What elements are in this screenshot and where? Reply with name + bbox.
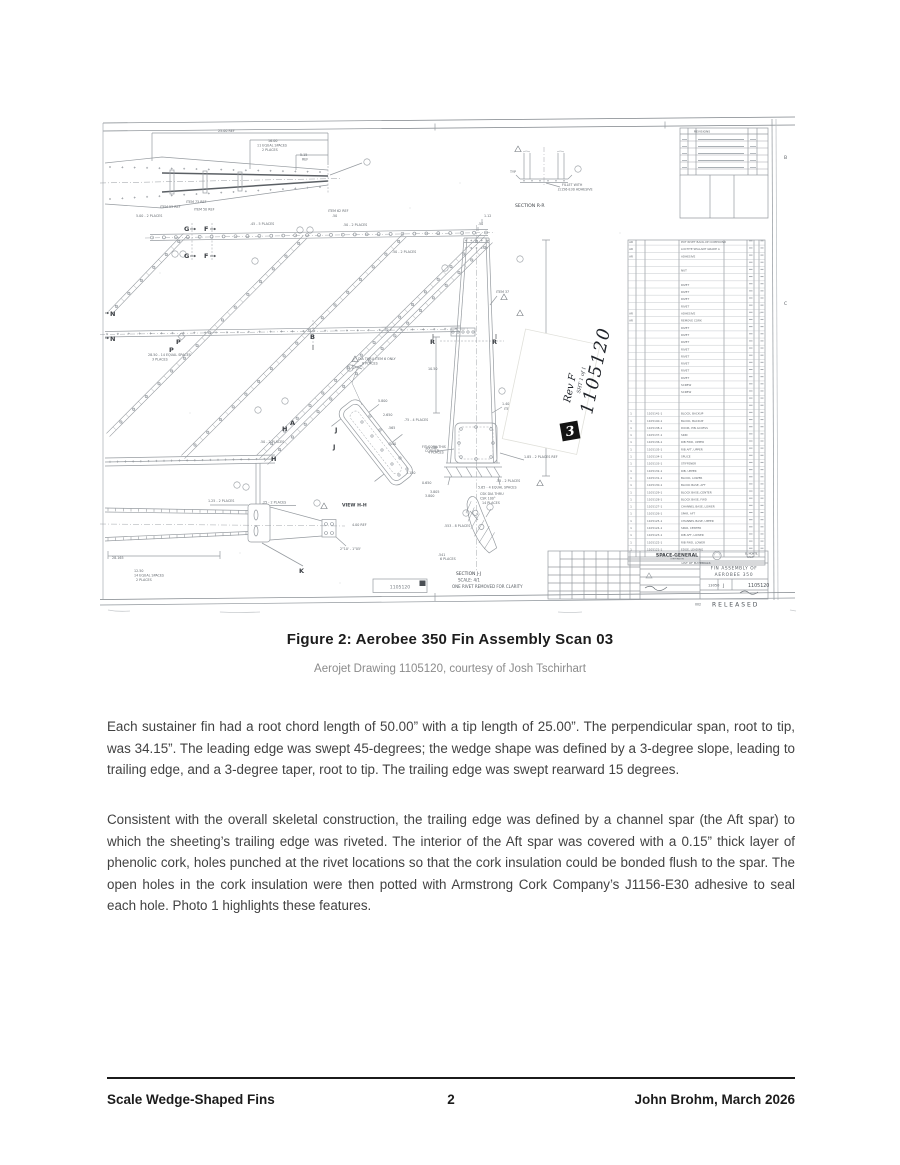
svg-text:3.800: 3.800 — [425, 494, 434, 498]
svg-text:BLOCK, BACKUP: BLOCK, BACKUP — [681, 412, 704, 416]
svg-text:1: 1 — [630, 483, 632, 487]
aerobee-fin-drawing: ARPOT RIVET BACK-UP COMPOUNDARLOCTITE SE… — [100, 113, 800, 613]
svg-text:28.165: 28.165 — [112, 556, 124, 560]
svg-text:RIVET: RIVET — [681, 326, 689, 330]
svg-text:2.650: 2.650 — [383, 413, 392, 417]
svg-text:.565: .565 — [388, 426, 395, 430]
svg-text:2 PLACES: 2 PLACES — [262, 148, 278, 152]
svg-text:2 PLACES: 2 PLACES — [136, 578, 152, 582]
svg-text:AR: AR — [629, 319, 633, 323]
footer-rule — [107, 1077, 795, 1079]
svg-text:STIFFENER: STIFFENER — [681, 462, 696, 466]
svg-text:1105134-1: 1105134-1 — [647, 455, 662, 459]
svg-text:16.00: 16.00 — [268, 139, 277, 143]
svg-text:3 PLACES: 3 PLACES — [152, 358, 168, 362]
svg-text:1.150: 1.150 — [406, 471, 415, 475]
svg-text:ITEM 62 REF: ITEM 62 REF — [328, 209, 349, 213]
svg-text:RIVET: RIVET — [681, 297, 689, 301]
svg-text:1105126-1: 1105126-1 — [647, 512, 662, 516]
svg-text:RIB FWD, LOWER: RIB FWD, LOWER — [681, 540, 705, 544]
svg-text:ITEM 37: ITEM 37 — [496, 290, 509, 294]
svg-text:RIVET: RIVET — [681, 290, 689, 294]
body-paragraph-1: Each sustainer fin had a root chord leng… — [107, 716, 795, 781]
svg-text:1: 1 — [630, 455, 632, 459]
svg-text:1: 1 — [630, 497, 632, 501]
svg-text:FILLET WITH: FILLET WITH — [562, 183, 583, 187]
svg-text:RIVET: RIVET — [681, 347, 689, 351]
svg-text:1105130-1: 1105130-1 — [647, 483, 662, 487]
svg-text:RIVET: RIVET — [681, 362, 689, 366]
svg-text:RIB FWD, UPPER: RIB FWD, UPPER — [681, 440, 704, 444]
svg-text:F: F — [204, 225, 208, 233]
svg-text:1105140-1: 1105140-1 — [647, 419, 662, 423]
svg-text:F: F — [204, 252, 208, 260]
svg-text:1: 1 — [630, 462, 632, 466]
svg-text:1105138-1: 1105138-1 — [647, 426, 662, 430]
svg-text:6 PLACES: 6 PLACES — [440, 557, 456, 561]
svg-text:AR: AR — [629, 240, 633, 244]
svg-text:B: B — [310, 333, 315, 341]
svg-text:.50: .50 — [478, 222, 483, 226]
svg-text:A: A — [290, 419, 295, 427]
svg-text:K: K — [299, 567, 305, 575]
svg-text:14 PLACES: 14 PLACES — [482, 501, 500, 505]
svg-text:P: P — [176, 338, 181, 346]
svg-text:1: 1 — [630, 476, 632, 480]
title-block-size: J — [722, 583, 724, 589]
figure-credit: Aerojet Drawing 1105120, courtesy of Jos… — [0, 663, 900, 675]
svg-text:.45 - 5 PLACES: .45 - 5 PLACES — [250, 222, 274, 226]
svg-text:1105127-1: 1105127-1 — [647, 505, 662, 509]
svg-text:TYP: TYP — [509, 170, 516, 174]
svg-text:2°10' - 1°05': 2°10' - 1°05' — [340, 547, 361, 551]
svg-text:.75 - 4 PLACES: .75 - 4 PLACES — [404, 418, 428, 422]
svg-text:1: 1 — [630, 426, 632, 430]
svg-text:8 PLACES: 8 PLACES — [362, 362, 378, 366]
svg-text:1105125-1: 1105125-1 — [647, 519, 662, 523]
list-of-materials: LIST OF MATERIALS — [681, 561, 710, 565]
released-prefix: 002 — [695, 603, 701, 607]
svg-text:POT RIVET BACK-UP COMPOUND: POT RIVET BACK-UP COMPOUND — [681, 240, 726, 244]
svg-text:25.00 REF: 25.00 REF — [218, 129, 235, 133]
svg-text:.50 - 2 PLACES: .50 - 2 PLACES — [392, 250, 416, 254]
svg-text:1105121-1: 1105121-1 — [647, 547, 662, 551]
handwritten-note: 1105120 Rev F SHT 1 of 1 3 — [502, 325, 615, 454]
svg-text:SCREW: SCREW — [681, 390, 691, 394]
svg-text:SCREW: SCREW — [681, 383, 691, 387]
svg-text:R: R — [430, 338, 435, 346]
svg-text:SPLICE: SPLICE — [681, 455, 691, 459]
svg-text:ITEM 73 REF: ITEM 73 REF — [186, 200, 207, 204]
svg-text:1105129-1: 1105129-1 — [647, 490, 662, 494]
svg-text:RIVET: RIVET — [681, 340, 689, 344]
svg-text:1: 1 — [630, 540, 632, 544]
svg-text:1: 1 — [630, 433, 632, 437]
svg-text:CSK DIA THRU: CSK DIA THRU — [480, 492, 504, 496]
revisions-title: REVISIONS — [694, 130, 710, 134]
svg-text:1: 1 — [630, 412, 632, 416]
drawing-title-line1: FIN ASSEMBLY OF — [711, 566, 758, 572]
svg-text:RIVET: RIVET — [681, 369, 689, 373]
svg-text:12.50: 12.50 — [134, 569, 143, 573]
svg-text:ADHESIVE: ADHESIVE — [681, 254, 695, 258]
footer-author-date: John Brohm, March 2026 — [634, 1092, 795, 1107]
svg-text:AR: AR — [629, 247, 633, 251]
svg-text:RIB AFT, UPPER: RIB AFT, UPPER — [681, 447, 703, 451]
title-block-number: 1105120 — [748, 583, 769, 589]
svg-text:.50 - 2 PLACES: .50 - 2 PLACES — [343, 223, 367, 227]
svg-text:G: G — [184, 225, 189, 233]
svg-text:1: 1 — [630, 533, 632, 537]
svg-text:1: 1 — [630, 447, 632, 451]
svg-text:H: H — [282, 425, 287, 433]
svg-text:AR: AR — [629, 254, 633, 258]
svg-text:N: N — [110, 335, 115, 343]
svg-text:BLOCK, LOWER: BLOCK, LOWER — [681, 476, 702, 480]
zone-letter-b: B — [784, 155, 787, 161]
svg-text:1105131-1: 1105131-1 — [647, 476, 662, 480]
svg-text:14 EQUAL SPACES: 14 EQUAL SPACES — [134, 574, 164, 578]
svg-text:1.12: 1.12 — [484, 214, 491, 218]
svg-text:RIVET: RIVET — [681, 376, 689, 380]
svg-text:SPAR, CENTER: SPAR, CENTER — [681, 526, 701, 530]
zone-letter-c: C — [784, 301, 787, 307]
svg-text:1105136-1: 1105136-1 — [647, 440, 662, 444]
svg-text:0.650: 0.650 — [422, 481, 431, 485]
svg-text:.50 - 2 PLACES: .50 - 2 PLACES — [260, 440, 284, 444]
svg-text:1105141-1: 1105141-1 — [647, 412, 662, 416]
body-paragraph-2: Consistent with the overall skeletal con… — [107, 809, 795, 917]
svg-text:RIB, UPPER: RIB, UPPER — [681, 469, 697, 473]
svg-text:5.00 - 2 PLACES: 5.00 - 2 PLACES — [136, 214, 162, 218]
svg-text:5.800: 5.800 — [378, 399, 387, 403]
svg-text:CORNER: CORNER — [425, 449, 440, 453]
svg-text:1.25 - 2 PLACES: 1.25 - 2 PLACES — [208, 499, 234, 503]
stamp-box-number: 1105120 — [390, 585, 411, 591]
figure-caption: Figure 2: Aerobee 350 Fin Assembly Scan … — [0, 631, 900, 648]
svg-text:CHANNEL BASE, LOWER: CHANNEL BASE, LOWER — [681, 505, 715, 509]
svg-text:10.50: 10.50 — [428, 367, 437, 371]
svg-text:J: J — [332, 443, 335, 451]
svg-text:.553 - 8 PLACES: .553 - 8 PLACES — [444, 524, 470, 528]
svg-text:1: 1 — [630, 505, 632, 509]
svg-text:P: P — [169, 346, 174, 354]
svg-text:R: R — [492, 338, 497, 346]
svg-text:.25 - 2 PLACES: .25 - 2 PLACES — [262, 501, 286, 505]
svg-text:SKIN: SKIN — [681, 433, 688, 437]
svg-text:.55 - 2 PLACES: .55 - 2 PLACES — [496, 479, 520, 483]
svg-text:.50: .50 — [332, 214, 337, 218]
svg-text:1: 1 — [630, 512, 632, 516]
document-page: ARPOT RIVET BACK-UP COMPOUNDARLOCTITE SE… — [0, 0, 900, 1165]
svg-text:BLOCK BASE, AFT: BLOCK BASE, AFT — [681, 483, 706, 487]
svg-text:CHANNEL BASE, UPPER: CHANNEL BASE, UPPER — [681, 519, 714, 523]
svg-text:1105137-1: 1105137-1 — [647, 433, 662, 437]
svg-text:AR: AR — [629, 312, 633, 316]
svg-text:1105133-1: 1105133-1 — [647, 462, 662, 466]
section-rr-label: SECTION R-R — [515, 203, 545, 209]
svg-text:LOCTITE SEALANT GRADE A: LOCTITE SEALANT GRADE A — [681, 247, 720, 251]
svg-text:1: 1 — [630, 547, 632, 551]
svg-text:5.15: 5.15 — [300, 153, 307, 157]
view-hh-label: VIEW H-H — [342, 503, 367, 509]
svg-text:ITEM 50 REF: ITEM 50 REF — [194, 208, 215, 212]
released-stamp: RELEASED — [712, 602, 759, 609]
svg-text:1: 1 — [630, 440, 632, 444]
svg-text:4.00 REF: 4.00 REF — [352, 523, 367, 527]
svg-text:RIB AFT, LOWER: RIB AFT, LOWER — [681, 533, 704, 537]
svg-text:BLOCK, BACKUP: BLOCK, BACKUP — [681, 419, 704, 423]
svg-text:RIVET: RIVET — [681, 283, 689, 287]
svg-text:1.85 - 2 PLACES REF: 1.85 - 2 PLACES REF — [524, 455, 558, 459]
svg-text:1105123-1: 1105123-1 — [647, 533, 662, 537]
svg-text:1: 1 — [630, 419, 632, 423]
svg-text:J1156-E30 ADHESIVE: J1156-E30 ADHESIVE — [557, 188, 593, 192]
svg-text:REMOVE CORK: REMOVE CORK — [681, 319, 702, 323]
svg-text:N: N — [110, 310, 115, 318]
drawing-title-line2: AEROBEE 350 — [715, 572, 754, 578]
figure-drawing-scan: ARPOT RIVET BACK-UP COMPOUNDARLOCTITE SE… — [100, 113, 800, 613]
svg-text:1: 1 — [630, 526, 632, 530]
svg-text:H: H — [271, 455, 276, 463]
svg-text:11 EQUAL SPACES: 11 EQUAL SPACES — [257, 144, 287, 148]
svg-text:RIVET: RIVET — [681, 333, 689, 337]
svg-text:1105128-1: 1105128-1 — [647, 497, 662, 501]
svg-text:1: 1 — [630, 469, 632, 473]
svg-text:1105132-1: 1105132-1 — [647, 469, 662, 473]
section-jj-label: SECTION J-J — [456, 571, 481, 577]
svg-text:1: 1 — [630, 490, 632, 494]
svg-text:DOOR, PIN ACCESS: DOOR, PIN ACCESS — [681, 426, 708, 430]
company-sub: CORPORATION — [670, 558, 684, 561]
svg-text:1105122-1: 1105122-1 — [647, 540, 662, 544]
title-block-code: 13050 — [708, 584, 720, 588]
svg-text:ADHESIVE: ADHESIVE — [681, 312, 695, 316]
svg-text:ITEM 53 REF: ITEM 53 REF — [160, 205, 181, 209]
svg-text:RIVET: RIVET — [681, 304, 689, 308]
svg-text:NUT: NUT — [681, 269, 687, 273]
section-jj-note: ONE RIVET REMOVED FOR CLARITY — [452, 584, 523, 589]
svg-text:.40: .40 — [391, 442, 396, 446]
svg-text:SPAR, AFT: SPAR, AFT — [681, 512, 695, 516]
svg-text:DIA THRU ITEM 6 ONLY: DIA THRU ITEM 6 ONLY — [358, 357, 397, 361]
svg-text:EDGE, LEADING: EDGE, LEADING — [681, 547, 703, 551]
svg-text:CSK 100°: CSK 100° — [480, 497, 496, 501]
svg-text:RIVET: RIVET — [681, 354, 689, 358]
svg-text:1105124-1: 1105124-1 — [647, 526, 662, 530]
svg-text:BLOCK BASE, FWD: BLOCK BASE, FWD — [681, 497, 707, 501]
svg-text:1: 1 — [630, 519, 632, 523]
svg-text:5.65 - 4 EQUAL SPACES: 5.65 - 4 EQUAL SPACES — [478, 486, 517, 490]
svg-text:J: J — [334, 426, 337, 434]
svg-text:G: G — [184, 252, 189, 260]
svg-text:REF: REF — [302, 158, 308, 162]
svg-text:BLOCK BASE, CENTER: BLOCK BASE, CENTER — [681, 490, 712, 494]
section-jj-scale: SCALE: 4/1 — [458, 578, 480, 583]
svg-text:1105135-1: 1105135-1 — [647, 447, 662, 451]
company-location2: CALIF. — [747, 556, 754, 559]
